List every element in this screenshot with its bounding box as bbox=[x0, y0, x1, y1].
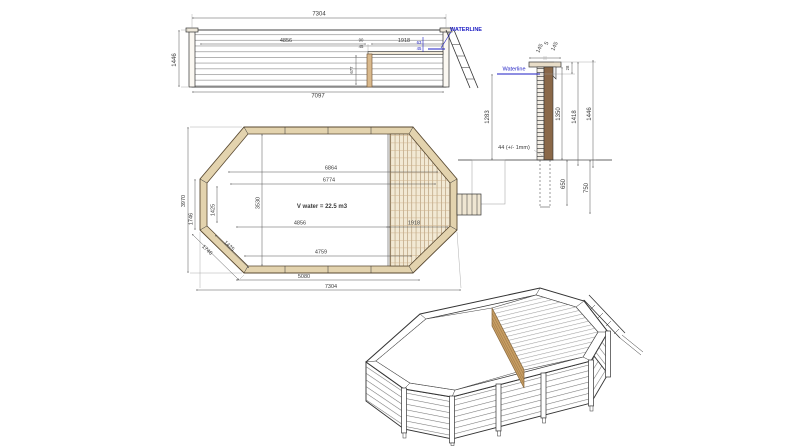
dim-overall-bottom: 7097 bbox=[311, 94, 325, 100]
dim-rim-to-waterline: 28 bbox=[565, 65, 570, 70]
section-waterline-label: Waterline bbox=[502, 67, 525, 73]
dim-cap-left: 145 bbox=[535, 43, 544, 54]
dim-overall-top: 7304 bbox=[312, 12, 326, 18]
dim-diagonal-outer: 1746 bbox=[200, 244, 213, 257]
isometric-view bbox=[366, 288, 643, 446]
plan-view: V water = 22.5 m3 6864 6774 4856 1918 47… bbox=[181, 127, 481, 290]
wall-inner-layer bbox=[537, 67, 544, 160]
dim-inner-length-a: 6864 bbox=[325, 166, 337, 172]
volume-label: V water = 22.5 m3 bbox=[297, 204, 348, 210]
deck-edge-elevation bbox=[368, 52, 443, 55]
right-end-post bbox=[443, 30, 449, 87]
dim-below-ground-b: 750 bbox=[584, 182, 590, 193]
dim-swim-length: 4856 bbox=[280, 38, 292, 44]
dim-inner-length-b: 6774 bbox=[323, 178, 335, 184]
dim-below-ground-a: 650 bbox=[561, 178, 567, 189]
dim-waterline-small-b: 45 bbox=[417, 46, 422, 51]
wall-section-view: Waterline 145 5 145 28 1350 1418 1446 12… bbox=[458, 41, 612, 214]
wall-outer-layer bbox=[544, 67, 553, 160]
technical-drawing: WATERLINE 7304 1446 7097 4856 1918 90 45… bbox=[0, 0, 794, 446]
dim-height: 1446 bbox=[172, 53, 178, 67]
dim-water-depth: 1283 bbox=[485, 110, 491, 124]
dim-overall-length-plan: 7304 bbox=[325, 284, 337, 290]
dim-deck-length: 1918 bbox=[398, 38, 410, 44]
dim-plank-tolerance: 44 (+/- 1mm) bbox=[498, 145, 530, 151]
dim-swim-length-plan: 4856 bbox=[294, 221, 306, 227]
dim-straight-bottom: 5080 bbox=[298, 274, 310, 280]
dim-side-outer: 1746 bbox=[189, 213, 195, 225]
dim-deck-length-plan: 1918 bbox=[408, 221, 420, 227]
ladder bbox=[446, 30, 478, 88]
dim-inner-width: 3530 bbox=[256, 197, 262, 209]
side-elevation-view: WATERLINE 7304 1446 7097 4856 1918 90 45… bbox=[172, 12, 482, 100]
dim-waterline-small-a: 63 bbox=[417, 40, 422, 45]
dim-total-height: 1446 bbox=[587, 107, 593, 121]
dim-cap-gap: 5 bbox=[544, 41, 551, 46]
waterline-label: WATERLINE bbox=[450, 27, 482, 33]
dim-rim-small-b: 45 bbox=[359, 44, 364, 49]
dim-rim-small-a: 90 bbox=[359, 38, 364, 43]
top-cap-section bbox=[529, 62, 561, 67]
left-end-post bbox=[189, 30, 195, 87]
drawing-canvas: WATERLINE 7304 1446 7097 4856 1918 90 45… bbox=[0, 0, 794, 446]
dim-side-inner: 1425 bbox=[211, 204, 217, 216]
dim-post-height: 677 bbox=[349, 66, 354, 74]
dim-wall-planks: 1350 bbox=[556, 107, 562, 121]
dim-overall-width: 3970 bbox=[181, 195, 187, 207]
deck-support-post bbox=[367, 54, 372, 87]
dim-wall-with-cap: 1418 bbox=[572, 110, 578, 124]
plan-ladder bbox=[457, 194, 481, 215]
dim-straight-top: 4759 bbox=[315, 250, 327, 256]
dim-cap-right: 145 bbox=[550, 41, 559, 52]
